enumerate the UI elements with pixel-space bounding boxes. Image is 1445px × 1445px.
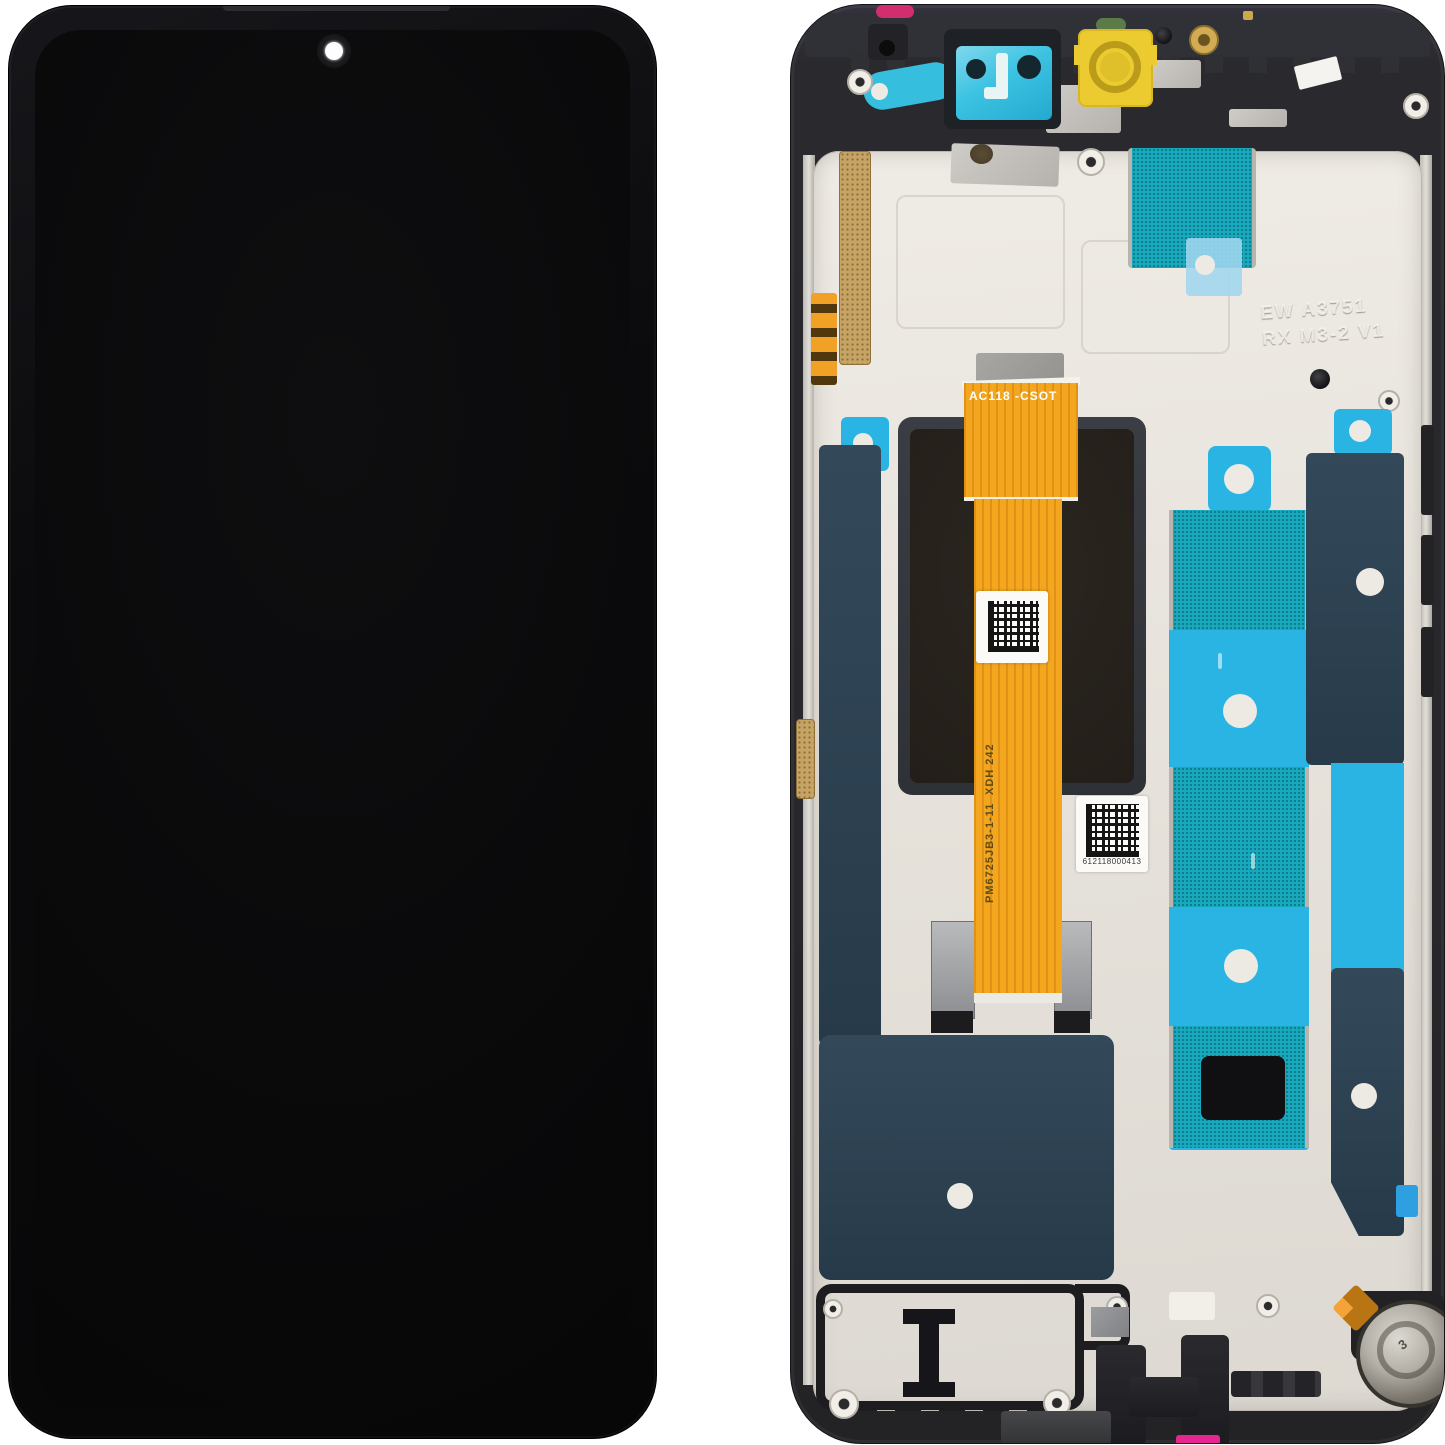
gold-mesh-contact (796, 719, 815, 799)
gold-mesh-contact (839, 151, 871, 365)
flex-end-band (974, 993, 1062, 1003)
screw-boss (1077, 148, 1105, 176)
pull-tab-hole (871, 83, 888, 100)
adhesive-hole (1224, 949, 1258, 983)
earpiece-slit (223, 6, 450, 11)
adhesive-hole (1351, 1083, 1377, 1109)
side-button-cutout (1421, 535, 1434, 605)
tab-hole (1195, 255, 1215, 275)
film-liner-foot (984, 87, 1008, 99)
flex-top-label: AC118 -CSOT (969, 389, 1057, 403)
flex-sub-number: XDH 242 (984, 743, 996, 795)
adhesive-strip-cyan-right (1331, 763, 1404, 975)
sensor-hole (879, 40, 895, 56)
frame-hole (1310, 369, 1330, 389)
speaker-cutout-stem (919, 1324, 939, 1382)
plate-emboss-outline (896, 195, 1065, 329)
flex-datamatrix-code (988, 601, 1039, 652)
adhesive-block-navy-bottom (819, 1035, 1114, 1280)
tab-hole (1224, 464, 1254, 494)
product-photo-display-assembly: EW A3751 RX M3-2 V1 AC118 -CSOT 20 21 CN… (0, 0, 1445, 1445)
serial-datamatrix-code (1086, 804, 1139, 857)
lens-cover-tab (1149, 45, 1157, 65)
tick-mark (1218, 653, 1222, 669)
camera-film-hole (1017, 55, 1041, 79)
screw-boss (1256, 1294, 1280, 1318)
magenta-seal-top (876, 5, 914, 18)
tick-mark (1251, 853, 1255, 869)
gold-contact-sliver (1243, 11, 1253, 20)
metal-shield-bit (1091, 1307, 1129, 1337)
connector-bracket-left (931, 921, 975, 1019)
frame-hole (1155, 27, 1172, 44)
adhesive-hole (947, 1183, 973, 1209)
camera-film-hole (966, 59, 986, 79)
screw-boss (1403, 93, 1429, 119)
black-foam-pad (1201, 1056, 1285, 1120)
connector-cap (1054, 1011, 1090, 1033)
side-flex-contact (811, 293, 837, 385)
screw-boss (847, 69, 873, 95)
speaker-cutout-bottom (903, 1382, 955, 1397)
lens-cover-tab (1074, 45, 1082, 65)
screw-boss (823, 1299, 843, 1319)
back-frame-assembly: EW A3751 RX M3-2 V1 AC118 -CSOT 20 21 CN… (790, 4, 1445, 1444)
magenta-seal-bottom (1176, 1435, 1220, 1444)
flex-vertical-marking: PM6725JB3-1-11 XDH 242 (983, 733, 997, 903)
adhesive-hole (1356, 568, 1384, 596)
gold-screw (1189, 25, 1219, 55)
adhesive-tab-blue-small (1396, 1185, 1418, 1217)
serial-number: 612118000413 (1076, 857, 1148, 866)
bottom-metal-piece (1001, 1411, 1111, 1444)
side-button-cutout (1421, 425, 1434, 515)
adhesive-strip-navy-left (819, 445, 881, 1045)
mesh-patch-b (1169, 767, 1309, 907)
lens-cover-center (1100, 52, 1130, 82)
white-label-small (1169, 1292, 1215, 1320)
antenna-patch (1229, 109, 1287, 127)
flex-part-number: PM6725JB3-1-11 (984, 803, 996, 903)
bottom-plastic-bridge (1129, 1377, 1199, 1417)
adhesive-strip-navy-right (1306, 453, 1404, 765)
antenna-patch (1151, 60, 1201, 88)
side-button-cutout (1421, 627, 1434, 697)
adhesive-hole (1223, 694, 1257, 728)
antenna-patch (950, 143, 1059, 187)
front-screen (35, 30, 630, 1408)
adhesive-dot (970, 144, 993, 164)
punch-hole-camera (325, 42, 343, 60)
mesh-patch-a (1169, 510, 1309, 630)
front-display-assembly (8, 5, 657, 1439)
bottom-toothed-piece (1231, 1371, 1321, 1397)
tab-hole (1349, 420, 1371, 442)
screw-boss (829, 1389, 859, 1419)
connector-cap (931, 1011, 973, 1033)
gasket-dashes (851, 1401, 1061, 1411)
flex-connector-tail (974, 921, 1062, 997)
speaker-cutout-top (903, 1309, 955, 1324)
